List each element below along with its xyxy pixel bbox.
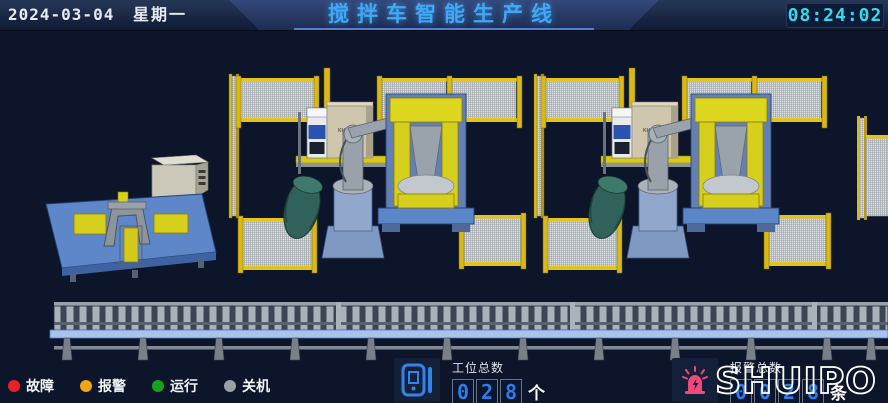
legend-item-off: 关机 <box>224 376 270 396</box>
alarm-counter-digits: 0 0 2 8 条 <box>730 379 847 403</box>
digit-box: 8 <box>500 379 522 403</box>
alarm-dot-icon <box>80 380 92 392</box>
clamp-unit-right <box>154 214 188 233</box>
digit-box: 0 <box>452 379 474 403</box>
arch-crossbar <box>108 202 146 209</box>
alarm-counter-unit: 条 <box>830 383 847 403</box>
legend-label: 关机 <box>242 376 270 396</box>
station-counter-label: 工位总数 <box>452 359 545 376</box>
alarm-counter-label: 报警总数 <box>730 359 847 376</box>
clock-display: 08:24:02 <box>786 3 884 28</box>
clamp-unit-left <box>74 214 106 234</box>
production-line-scene: KUKA <box>0 30 888 363</box>
robot-cell-1 <box>229 68 526 273</box>
digit-box: 0 <box>730 379 752 403</box>
digit-box: 2 <box>778 379 800 403</box>
platform-leg <box>70 274 76 282</box>
alarm-beacon-icon <box>680 365 710 395</box>
station-counter: 工位总数 0 2 8 个 <box>394 358 545 403</box>
scada-dashboard: 2024-03-04 星期一 搅拌车智能生产线 08:24:02 <box>0 0 888 403</box>
weekday-text: 星期一 <box>133 7 187 24</box>
arch-top-tool <box>118 192 128 203</box>
date-text: 2024-03-04 <box>8 5 114 24</box>
robot-cell-2 <box>534 68 831 273</box>
legend-item-running: 运行 <box>152 376 198 396</box>
legend-label: 报警 <box>98 376 126 396</box>
conveyor-guide-rail <box>50 330 888 338</box>
legend-item-fault: 故障 <box>8 376 54 396</box>
alarm-counter: 报警总数 0 0 2 8 条 <box>672 358 847 403</box>
roller-conveyor <box>50 302 888 360</box>
station-counter-icon-box <box>394 358 440 402</box>
platform-leg <box>198 260 204 268</box>
header: 2024-03-04 星期一 搅拌车智能生产线 08:24:02 <box>0 0 888 31</box>
legend-label: 运行 <box>170 376 198 396</box>
station-counter-digits: 0 2 8 个 <box>452 379 545 403</box>
digit-box: 2 <box>476 379 498 403</box>
station-counter-unit: 个 <box>528 383 545 403</box>
digit-box: 8 <box>802 379 824 403</box>
fixture-station <box>46 155 216 282</box>
station-counter-body: 工位总数 0 2 8 个 <box>452 358 545 403</box>
digit-box: 0 <box>754 379 776 403</box>
center-column <box>124 228 138 262</box>
status-legend: 故障 报警 运行 关机 <box>8 376 270 396</box>
legend-item-alarm: 报警 <box>80 376 126 396</box>
legend-label: 故障 <box>26 376 54 396</box>
running-dot-icon <box>152 380 164 392</box>
off-dot-icon <box>224 380 236 392</box>
date-display: 2024-03-04 星期一 <box>8 0 187 31</box>
fence-partial-right <box>857 116 888 220</box>
alarm-counter-body: 报警总数 0 0 2 8 条 <box>730 358 847 403</box>
fault-dot-icon <box>8 380 20 392</box>
page-title: 搅拌车智能生产线 <box>328 0 560 30</box>
alarm-counter-icon-box <box>672 358 718 402</box>
counter-device-icon <box>401 363 433 397</box>
platform-leg <box>132 270 138 278</box>
